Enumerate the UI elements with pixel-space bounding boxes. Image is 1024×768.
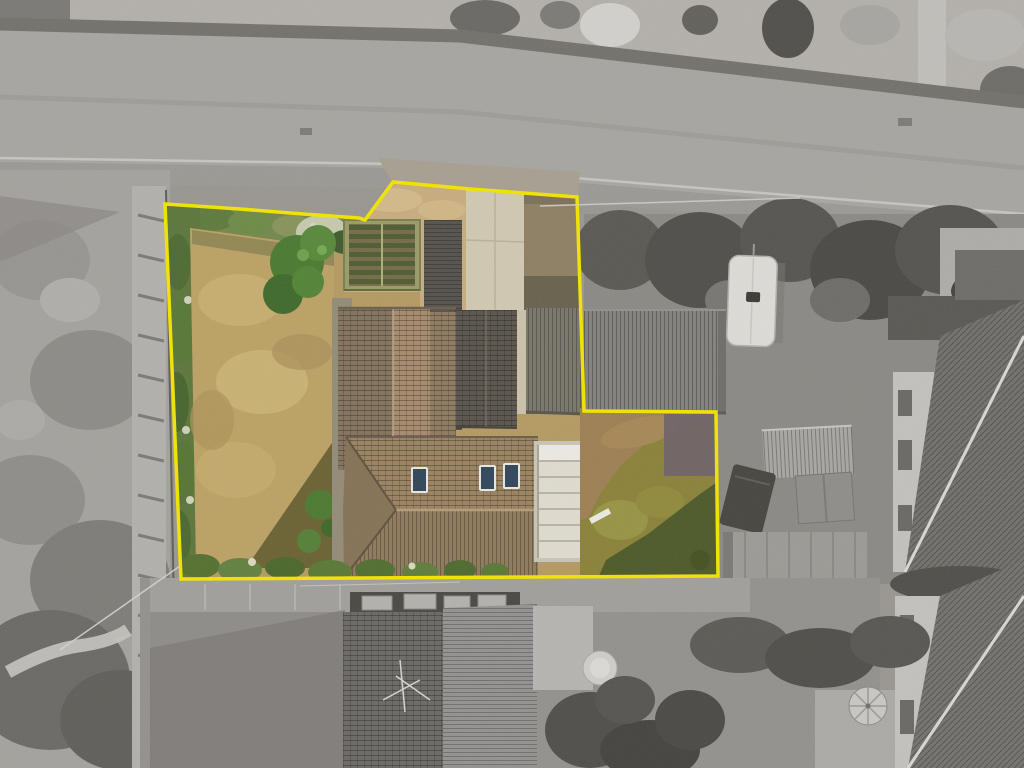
aerial-photo xyxy=(0,0,1024,768)
aerial-photo-canvas xyxy=(0,0,1024,768)
photo-grain-overlay xyxy=(0,0,1024,768)
